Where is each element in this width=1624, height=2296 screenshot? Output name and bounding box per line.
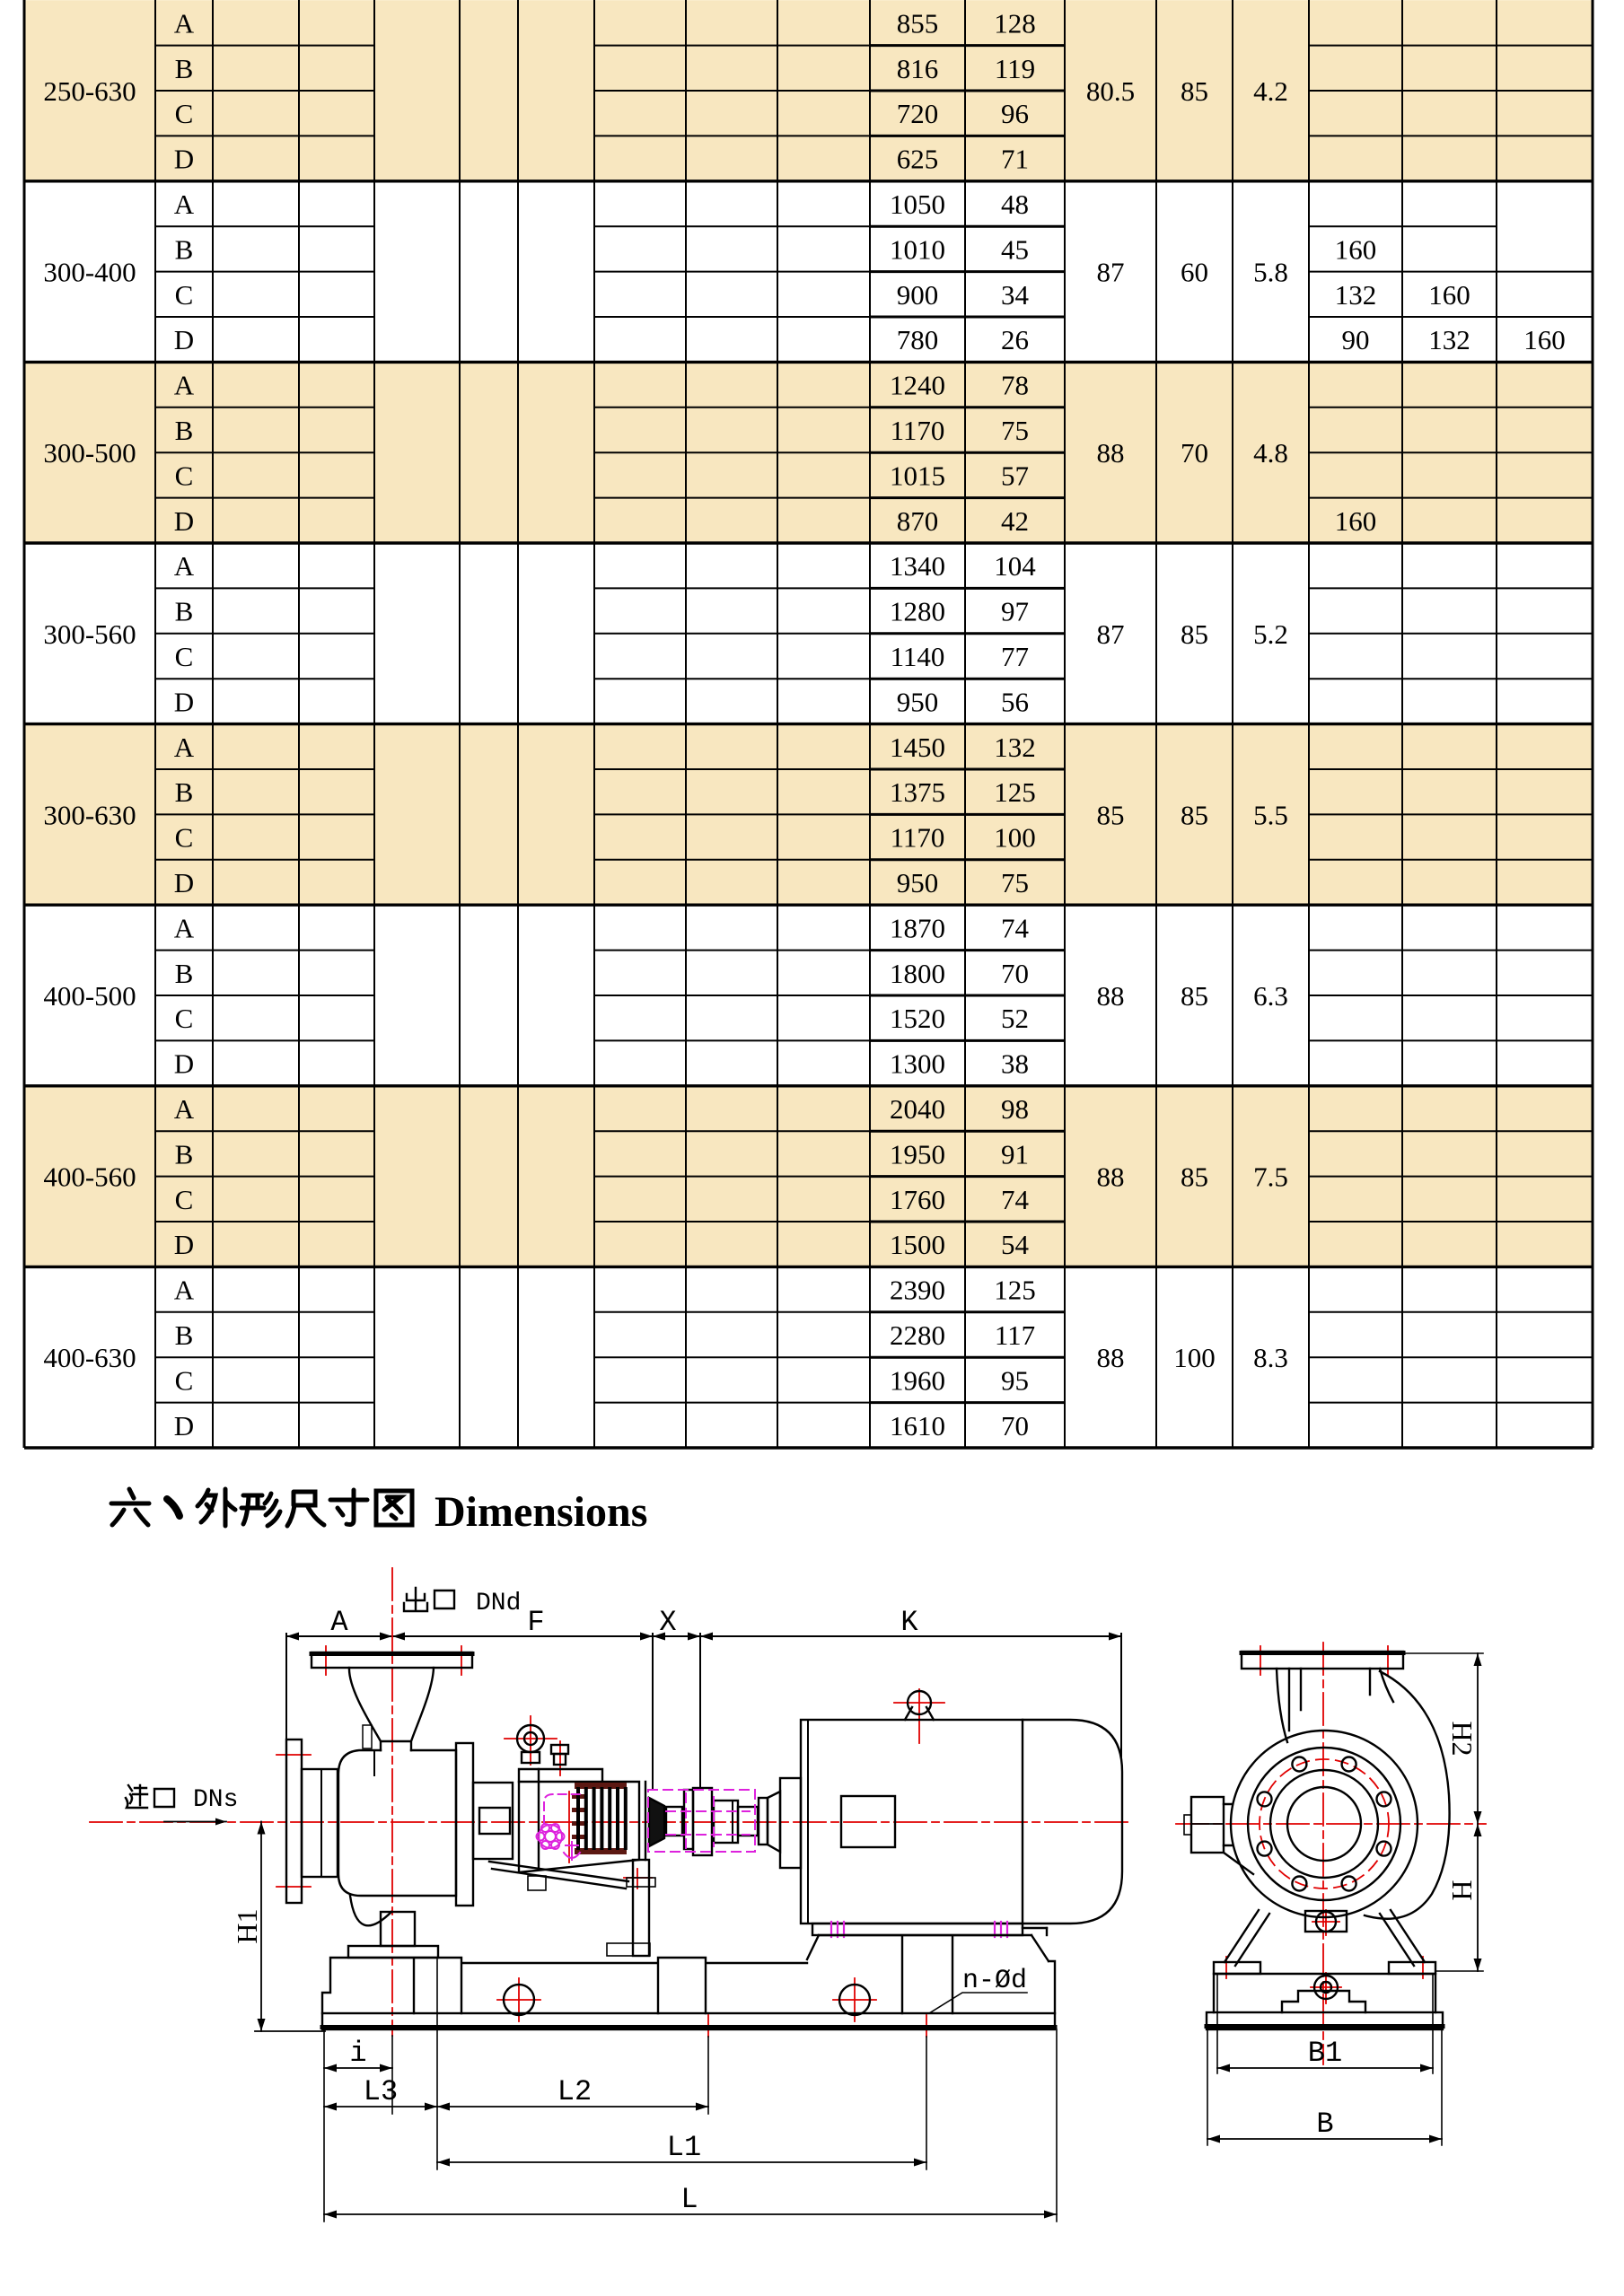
svg-text:100: 100 bbox=[1173, 1342, 1216, 1373]
svg-text:A: A bbox=[174, 188, 195, 220]
svg-text:B: B bbox=[175, 1138, 194, 1170]
svg-text:98: 98 bbox=[1001, 1093, 1029, 1125]
svg-text:45: 45 bbox=[1001, 233, 1029, 265]
svg-text:A: A bbox=[174, 1275, 195, 1306]
svg-text:1170: 1170 bbox=[891, 415, 945, 446]
svg-text:B: B bbox=[1316, 2108, 1333, 2141]
svg-text:87: 87 bbox=[1097, 618, 1125, 650]
svg-text:1960: 1960 bbox=[890, 1364, 945, 1396]
svg-text:125: 125 bbox=[994, 776, 1036, 808]
svg-text:D: D bbox=[174, 505, 194, 537]
svg-text:C: C bbox=[175, 460, 194, 491]
svg-text:117: 117 bbox=[995, 1319, 1035, 1351]
svg-text:74: 74 bbox=[1001, 1184, 1030, 1215]
svg-text:900: 900 bbox=[897, 279, 939, 311]
svg-text:L2: L2 bbox=[557, 2075, 592, 2108]
svg-text:132: 132 bbox=[1335, 279, 1377, 311]
svg-text:1300: 1300 bbox=[890, 1048, 945, 1080]
svg-text:1760: 1760 bbox=[890, 1184, 945, 1215]
svg-text:132: 132 bbox=[994, 732, 1036, 763]
svg-text:96: 96 bbox=[1001, 98, 1029, 129]
svg-text:91: 91 bbox=[1001, 1138, 1029, 1170]
svg-text:300-630: 300-630 bbox=[43, 799, 136, 830]
svg-text:400-630: 400-630 bbox=[43, 1342, 136, 1373]
svg-text:1800: 1800 bbox=[890, 958, 945, 989]
svg-text:48: 48 bbox=[1001, 188, 1029, 220]
svg-text:D: D bbox=[174, 1048, 194, 1080]
svg-text:B: B bbox=[175, 1319, 194, 1351]
svg-text:88: 88 bbox=[1097, 437, 1125, 469]
svg-text:1170: 1170 bbox=[891, 822, 945, 854]
svg-text:56: 56 bbox=[1001, 686, 1029, 717]
svg-text:D: D bbox=[174, 686, 194, 717]
svg-text:L: L bbox=[680, 2183, 698, 2216]
svg-text:38: 38 bbox=[1001, 1048, 1029, 1080]
svg-text:71: 71 bbox=[1001, 144, 1029, 175]
svg-text:1950: 1950 bbox=[890, 1138, 945, 1170]
svg-text:5.2: 5.2 bbox=[1253, 618, 1288, 650]
svg-text:B1: B1 bbox=[1308, 2037, 1342, 2070]
svg-text:85: 85 bbox=[1181, 618, 1208, 650]
svg-text:1375: 1375 bbox=[890, 776, 945, 808]
svg-text:A: A bbox=[174, 550, 195, 582]
svg-text:52: 52 bbox=[1001, 1003, 1029, 1034]
svg-text:780: 780 bbox=[897, 324, 939, 355]
svg-text:C: C bbox=[175, 279, 194, 311]
svg-text:85: 85 bbox=[1181, 980, 1208, 1012]
svg-text:85: 85 bbox=[1097, 799, 1125, 830]
svg-text:B: B bbox=[175, 415, 194, 446]
svg-text:70: 70 bbox=[1001, 1410, 1029, 1442]
svg-text:250-630: 250-630 bbox=[43, 75, 136, 107]
svg-text:97: 97 bbox=[1001, 596, 1029, 627]
svg-text:C: C bbox=[175, 1003, 194, 1034]
svg-text:74: 74 bbox=[1001, 912, 1030, 943]
svg-text:5.8: 5.8 bbox=[1253, 257, 1288, 288]
svg-text:85: 85 bbox=[1181, 1161, 1208, 1193]
svg-text:78: 78 bbox=[1001, 370, 1029, 401]
svg-text:X: X bbox=[659, 1606, 676, 1639]
svg-text:C: C bbox=[175, 641, 194, 672]
svg-text:2390: 2390 bbox=[890, 1275, 945, 1306]
svg-text:D: D bbox=[174, 1410, 194, 1442]
svg-text:L1: L1 bbox=[667, 2131, 701, 2164]
svg-text:A: A bbox=[174, 912, 195, 943]
svg-text:855: 855 bbox=[897, 7, 939, 39]
svg-text:88: 88 bbox=[1097, 1161, 1125, 1193]
svg-text:B: B bbox=[175, 596, 194, 627]
svg-text:42: 42 bbox=[1001, 505, 1029, 537]
svg-text:B: B bbox=[175, 958, 194, 989]
svg-text:88: 88 bbox=[1097, 1342, 1125, 1373]
svg-text:H: H bbox=[1446, 1880, 1479, 1900]
svg-text:C: C bbox=[175, 1184, 194, 1215]
svg-text:B: B bbox=[175, 53, 194, 84]
svg-text:75: 75 bbox=[1001, 415, 1029, 446]
svg-text:104: 104 bbox=[994, 550, 1036, 582]
svg-text:125: 125 bbox=[994, 1275, 1036, 1306]
svg-text:B: B bbox=[175, 233, 194, 265]
svg-text:A: A bbox=[174, 1093, 195, 1125]
svg-text:8.3: 8.3 bbox=[1253, 1342, 1288, 1373]
svg-text:A: A bbox=[330, 1606, 348, 1639]
svg-text:4.8: 4.8 bbox=[1253, 437, 1288, 469]
svg-text:119: 119 bbox=[995, 53, 1035, 84]
svg-text:L3: L3 bbox=[364, 2075, 398, 2108]
svg-text:4.2: 4.2 bbox=[1253, 75, 1288, 107]
svg-text:2040: 2040 bbox=[890, 1093, 945, 1125]
svg-text:128: 128 bbox=[994, 7, 1036, 39]
svg-text:D: D bbox=[174, 867, 194, 898]
svg-text:88: 88 bbox=[1097, 980, 1125, 1012]
svg-text:1500: 1500 bbox=[890, 1229, 945, 1260]
svg-text:1610: 1610 bbox=[890, 1410, 945, 1442]
svg-text:D: D bbox=[174, 144, 194, 175]
svg-text:2280: 2280 bbox=[890, 1319, 945, 1351]
svg-text:i: i bbox=[349, 2037, 366, 2070]
svg-text:70: 70 bbox=[1181, 437, 1208, 469]
svg-text:D: D bbox=[174, 324, 194, 355]
svg-text:D: D bbox=[174, 1229, 194, 1260]
svg-text:70: 70 bbox=[1001, 958, 1029, 989]
svg-text:75: 75 bbox=[1001, 867, 1029, 898]
svg-text:5.5: 5.5 bbox=[1253, 799, 1288, 830]
svg-text:300-500: 300-500 bbox=[43, 437, 136, 469]
svg-text:85: 85 bbox=[1181, 75, 1208, 107]
svg-text:n-Ød: n-Ød bbox=[962, 1966, 1027, 1996]
svg-text:57: 57 bbox=[1001, 460, 1029, 491]
svg-text:1050: 1050 bbox=[890, 188, 945, 220]
svg-text:77: 77 bbox=[1001, 641, 1029, 672]
svg-text:K: K bbox=[900, 1606, 918, 1639]
svg-text:160: 160 bbox=[1335, 233, 1377, 265]
svg-text:7.5: 7.5 bbox=[1253, 1161, 1288, 1193]
svg-text:Dimensions: Dimensions bbox=[435, 1488, 647, 1536]
svg-text:100: 100 bbox=[994, 822, 1036, 854]
svg-text:300-400: 300-400 bbox=[43, 257, 136, 288]
svg-text:A: A bbox=[174, 732, 195, 763]
svg-text:1450: 1450 bbox=[890, 732, 945, 763]
svg-text:870: 870 bbox=[897, 505, 939, 537]
svg-text:300-560: 300-560 bbox=[43, 618, 136, 650]
svg-text:DNs: DNs bbox=[193, 1786, 238, 1814]
svg-text:95: 95 bbox=[1001, 1364, 1029, 1396]
svg-text:C: C bbox=[175, 822, 194, 854]
svg-text:60: 60 bbox=[1181, 257, 1208, 288]
svg-text:625: 625 bbox=[897, 144, 939, 175]
svg-text:80.5: 80.5 bbox=[1086, 75, 1135, 107]
svg-text:720: 720 bbox=[897, 98, 939, 129]
svg-text:816: 816 bbox=[897, 53, 939, 84]
svg-text:160: 160 bbox=[1335, 505, 1377, 537]
svg-text:160: 160 bbox=[1428, 279, 1470, 311]
svg-text:C: C bbox=[175, 1364, 194, 1396]
svg-text:1280: 1280 bbox=[890, 596, 945, 627]
svg-text:54: 54 bbox=[1001, 1229, 1030, 1260]
svg-text:1870: 1870 bbox=[890, 912, 945, 943]
svg-text:1240: 1240 bbox=[890, 370, 945, 401]
svg-text:C: C bbox=[175, 98, 194, 129]
svg-text:26: 26 bbox=[1001, 324, 1029, 355]
svg-text:400-500: 400-500 bbox=[43, 980, 136, 1012]
svg-text:34: 34 bbox=[1001, 279, 1030, 311]
svg-text:950: 950 bbox=[897, 867, 939, 898]
svg-text:1015: 1015 bbox=[890, 460, 945, 491]
svg-text:B: B bbox=[175, 776, 194, 808]
svg-text:132: 132 bbox=[1428, 324, 1470, 355]
svg-text:A: A bbox=[174, 7, 195, 39]
svg-text:1340: 1340 bbox=[890, 550, 945, 582]
svg-text:6.3: 6.3 bbox=[1253, 980, 1288, 1012]
svg-text:90: 90 bbox=[1342, 324, 1370, 355]
svg-text:85: 85 bbox=[1181, 799, 1208, 830]
svg-text:87: 87 bbox=[1097, 257, 1125, 288]
svg-text:A: A bbox=[174, 370, 195, 401]
svg-text:400-560: 400-560 bbox=[43, 1161, 136, 1193]
svg-text:DNd: DNd bbox=[476, 1590, 521, 1617]
svg-text:160: 160 bbox=[1523, 324, 1566, 355]
svg-text:H1: H1 bbox=[231, 1908, 263, 1943]
svg-text:1140: 1140 bbox=[891, 641, 945, 672]
svg-text:1520: 1520 bbox=[890, 1003, 945, 1034]
svg-text:950: 950 bbox=[897, 686, 939, 717]
svg-text:F: F bbox=[527, 1606, 544, 1639]
svg-text:H2: H2 bbox=[1446, 1721, 1479, 1756]
svg-text:1010: 1010 bbox=[890, 233, 945, 265]
